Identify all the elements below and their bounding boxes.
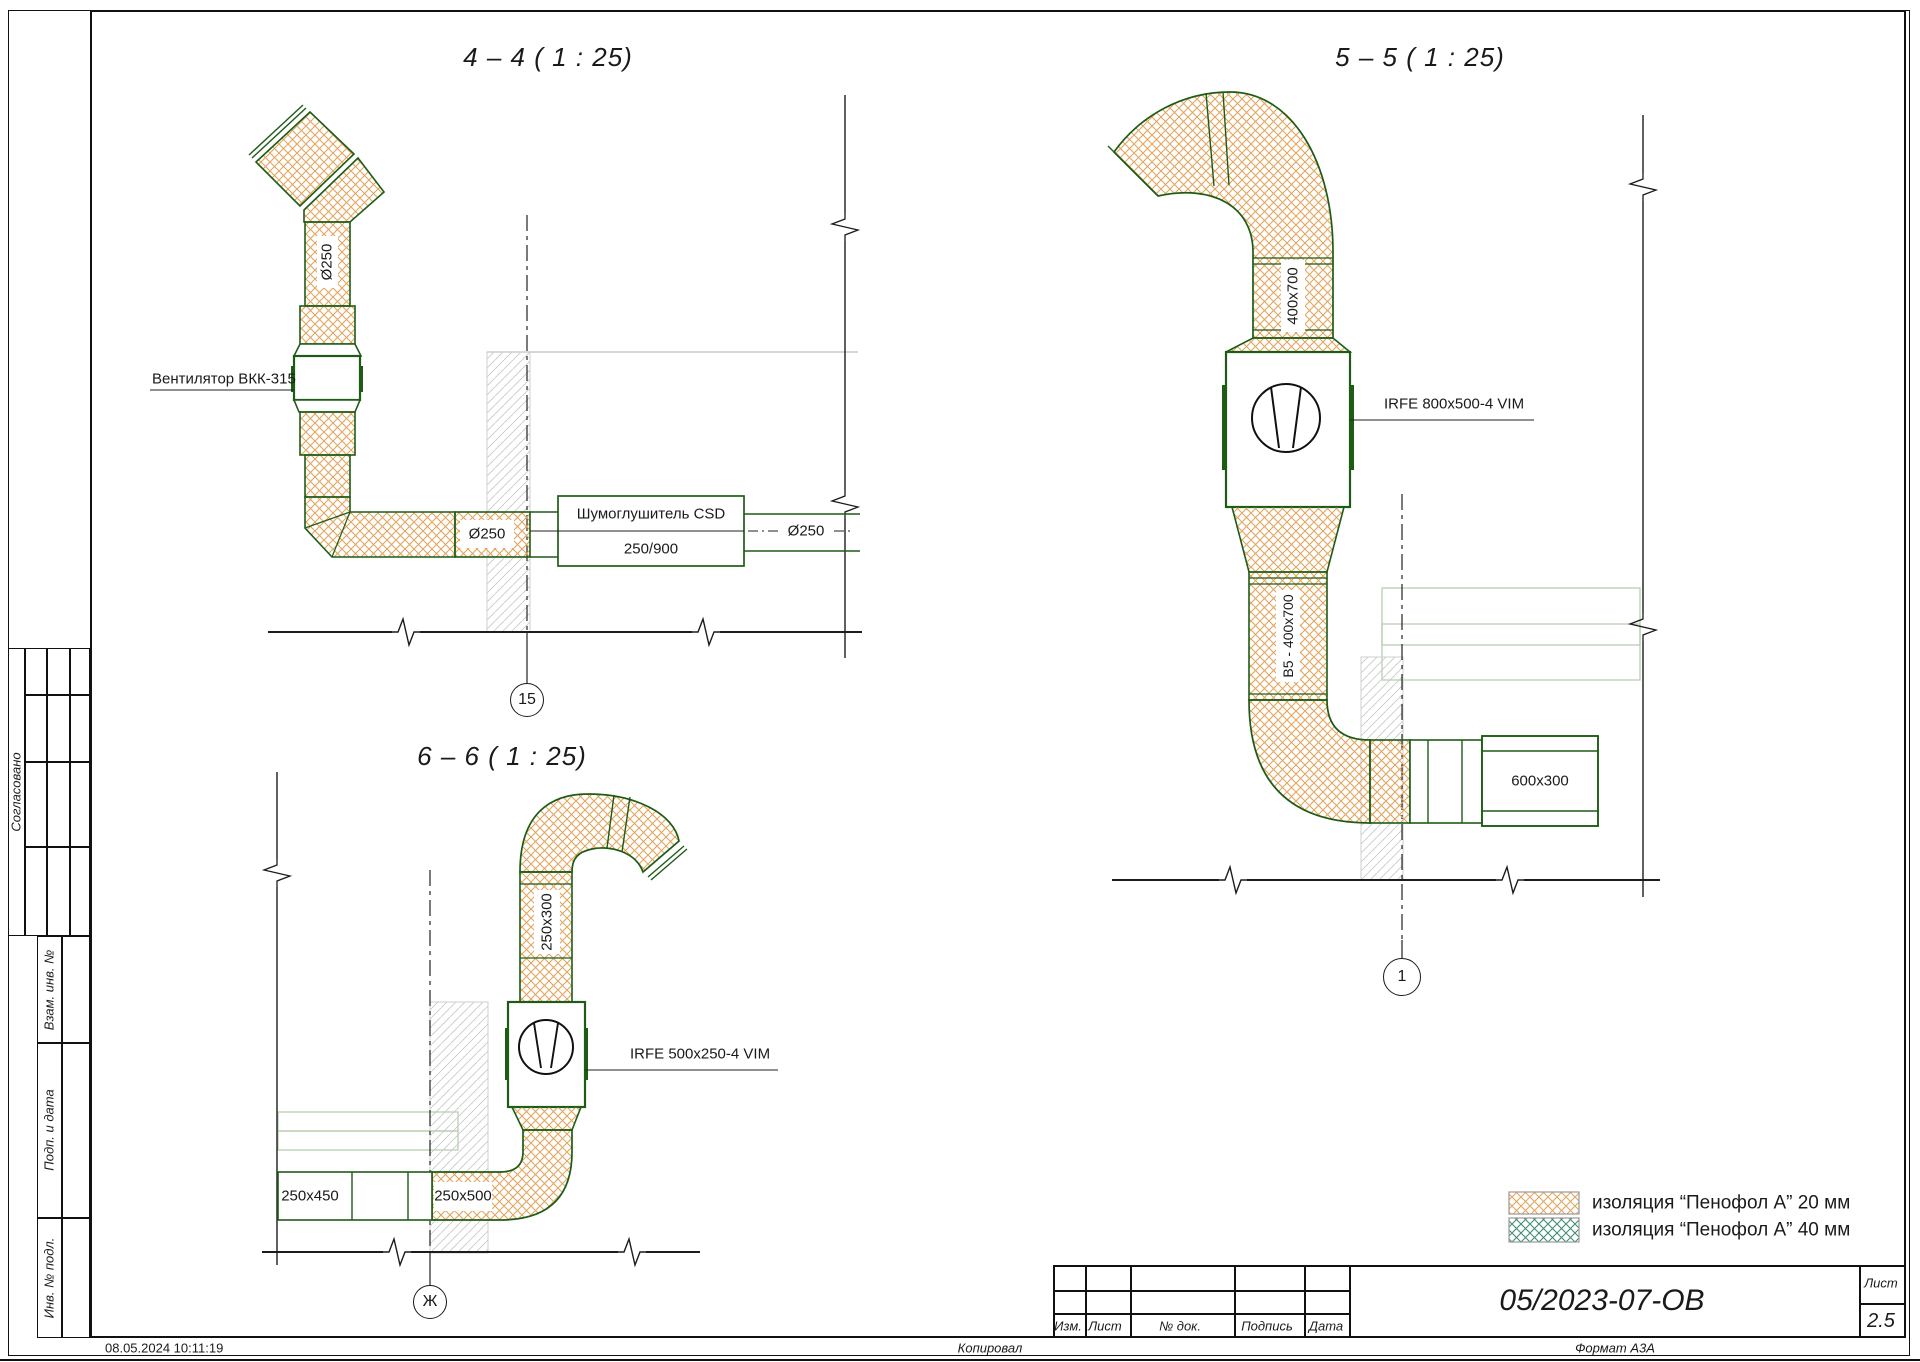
duct-dia-250-elbow-label: Ø250 [469,527,506,542]
duct-250x300-label: 250x300 [540,893,555,951]
side-stamp-approved-label: Согласовано [10,752,23,831]
side-stamp-inv-orig-label: Инв. № подл. [43,1238,56,1319]
side-stamp-subst-inv-label: Взам. инв. № [43,950,56,1030]
duct-dia-250-right-label: Ø250 [788,524,825,539]
axis-callout-1: 1 [1383,958,1421,996]
axis-callout-15: 15 [510,683,544,717]
section-6-6-title: 6 – 6 ( 1 : 25) [417,743,587,769]
duct-dia-250-top-label: Ø250 [320,244,335,281]
drawing-sheet: Согласовано Взам. инв. № Подп. и дата Ин… [0,0,1920,1362]
drawing-frame [90,10,1906,1338]
silencer-size-label: 250/900 [624,542,678,557]
axis-callout-1-value: 1 [1398,968,1407,986]
axis-callout-zh: Ж [413,1285,447,1319]
title-block-col-list: Лист [1088,1320,1121,1333]
axis-callout-zh-value: Ж [423,1293,438,1311]
fan-vkk-315-label: Вентилятор ВКК-315 [152,372,296,387]
duct-400x700-top-label: 400x700 [1286,267,1301,325]
unit-irfe-500x250-label: IRFE 500x250-4 VIM [630,1047,770,1062]
section-5-5-title: 5 – 5 ( 1 : 25) [1335,44,1505,70]
format-label: Формат А3А [1575,1342,1655,1355]
duct-250x450-label: 250x450 [281,1189,339,1204]
copied-label: Копировал [958,1342,1023,1355]
legend-item-insulation-20: изоляция “Пенофол А” 20 мм [1592,1194,1850,1213]
title-block-doc-number: 05/2023-07-ОВ [1499,1286,1704,1316]
unit-irfe-800x500-label: IRFE 800x500-4 VIM [1384,397,1524,412]
plot-timestamp: 08.05.2024 10:11:19 [105,1342,223,1355]
title-block-sheet-label: Лист [1864,1277,1897,1290]
axis-callout-15-value: 15 [518,691,536,709]
page-bottom-edge [0,1359,1920,1361]
title-block-col-sign: Подпись [1241,1320,1293,1333]
section-4-4-title: 4 – 4 ( 1 : 25) [463,44,633,70]
title-block-col-date: Дата [1309,1320,1343,1333]
title-block-sheet-value: 2.5 [1867,1311,1895,1331]
silencer-csd-label: Шумоглушитель CSD [577,507,726,522]
title-block-col-doc: № док. [1159,1320,1201,1333]
duct-250x500-label: 250x500 [434,1189,492,1204]
duct-v5-400x700-label: В5 - 400x700 [1281,594,1295,677]
title-block-col-izm: Изм. [1054,1320,1082,1333]
legend-item-insulation-40: изоляция “Пенофол А” 40 мм [1592,1221,1850,1240]
side-stamp-sign-date-label: Подп. и дата [43,1089,56,1170]
duct-600x300-label: 600x300 [1511,774,1569,789]
